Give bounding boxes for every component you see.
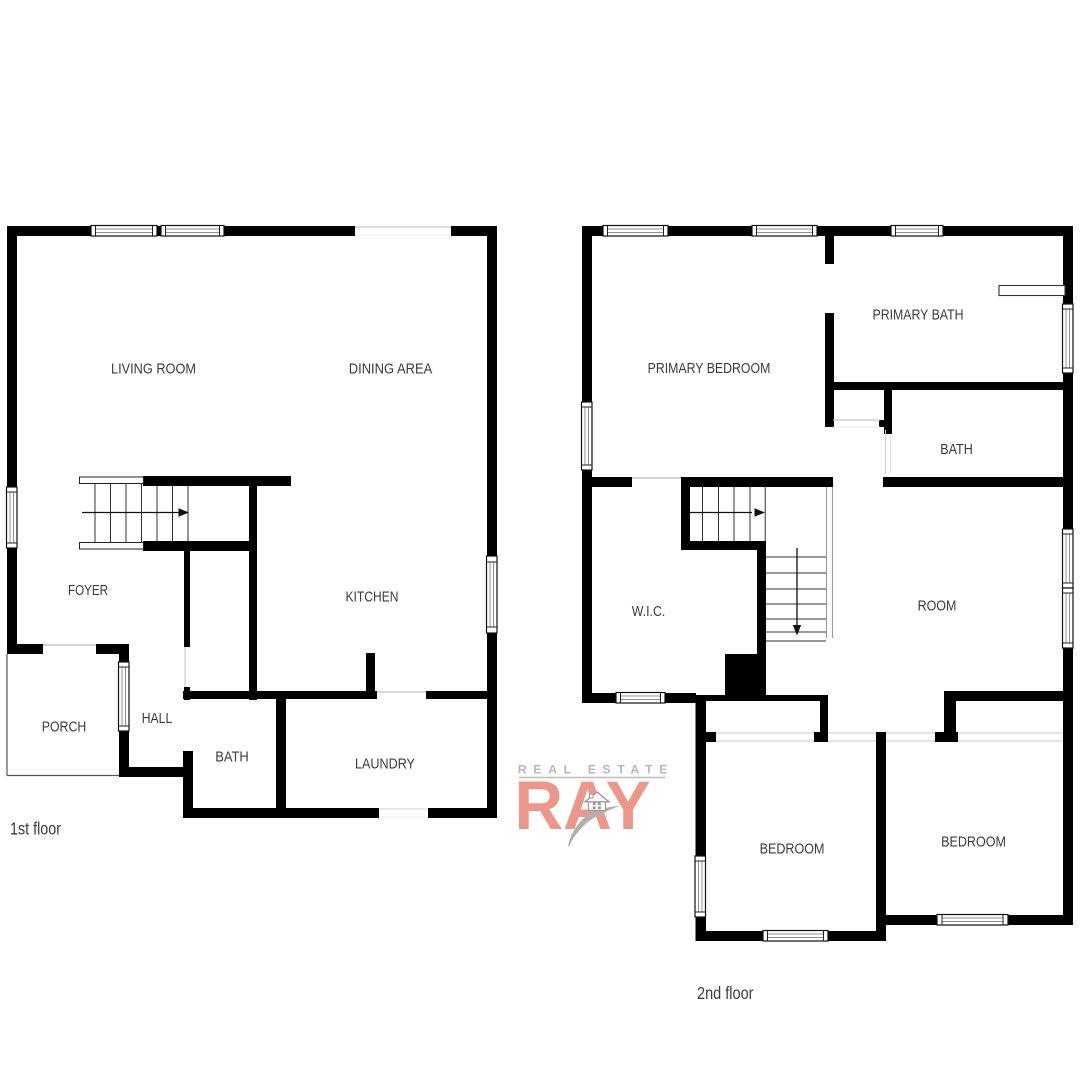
svg-text:2nd floor: 2nd floor: [697, 983, 754, 1003]
svg-text:RAY: RAY: [515, 767, 651, 844]
svg-text:LIVING ROOM: LIVING ROOM: [111, 362, 196, 378]
svg-text:1st floor: 1st floor: [10, 819, 61, 839]
svg-text:PORCH: PORCH: [42, 720, 86, 736]
svg-text:DINING AREA: DINING AREA: [349, 362, 433, 378]
svg-text:HALL: HALL: [142, 711, 173, 727]
svg-text:BEDROOM: BEDROOM: [941, 835, 1006, 851]
svg-text:PRIMARY BEDROOM: PRIMARY BEDROOM: [648, 361, 771, 377]
svg-text:FOYER: FOYER: [68, 583, 108, 599]
svg-text:W.I.C.: W.I.C.: [632, 604, 666, 620]
svg-text:BEDROOM: BEDROOM: [760, 842, 825, 858]
svg-text:KITCHEN: KITCHEN: [346, 590, 399, 606]
svg-text:BATH: BATH: [940, 442, 973, 458]
svg-text:ROOM: ROOM: [918, 599, 957, 615]
svg-text:LAUNDRY: LAUNDRY: [355, 757, 415, 773]
svg-text:BATH: BATH: [215, 750, 249, 766]
svg-text:PRIMARY BATH: PRIMARY BATH: [873, 308, 964, 324]
